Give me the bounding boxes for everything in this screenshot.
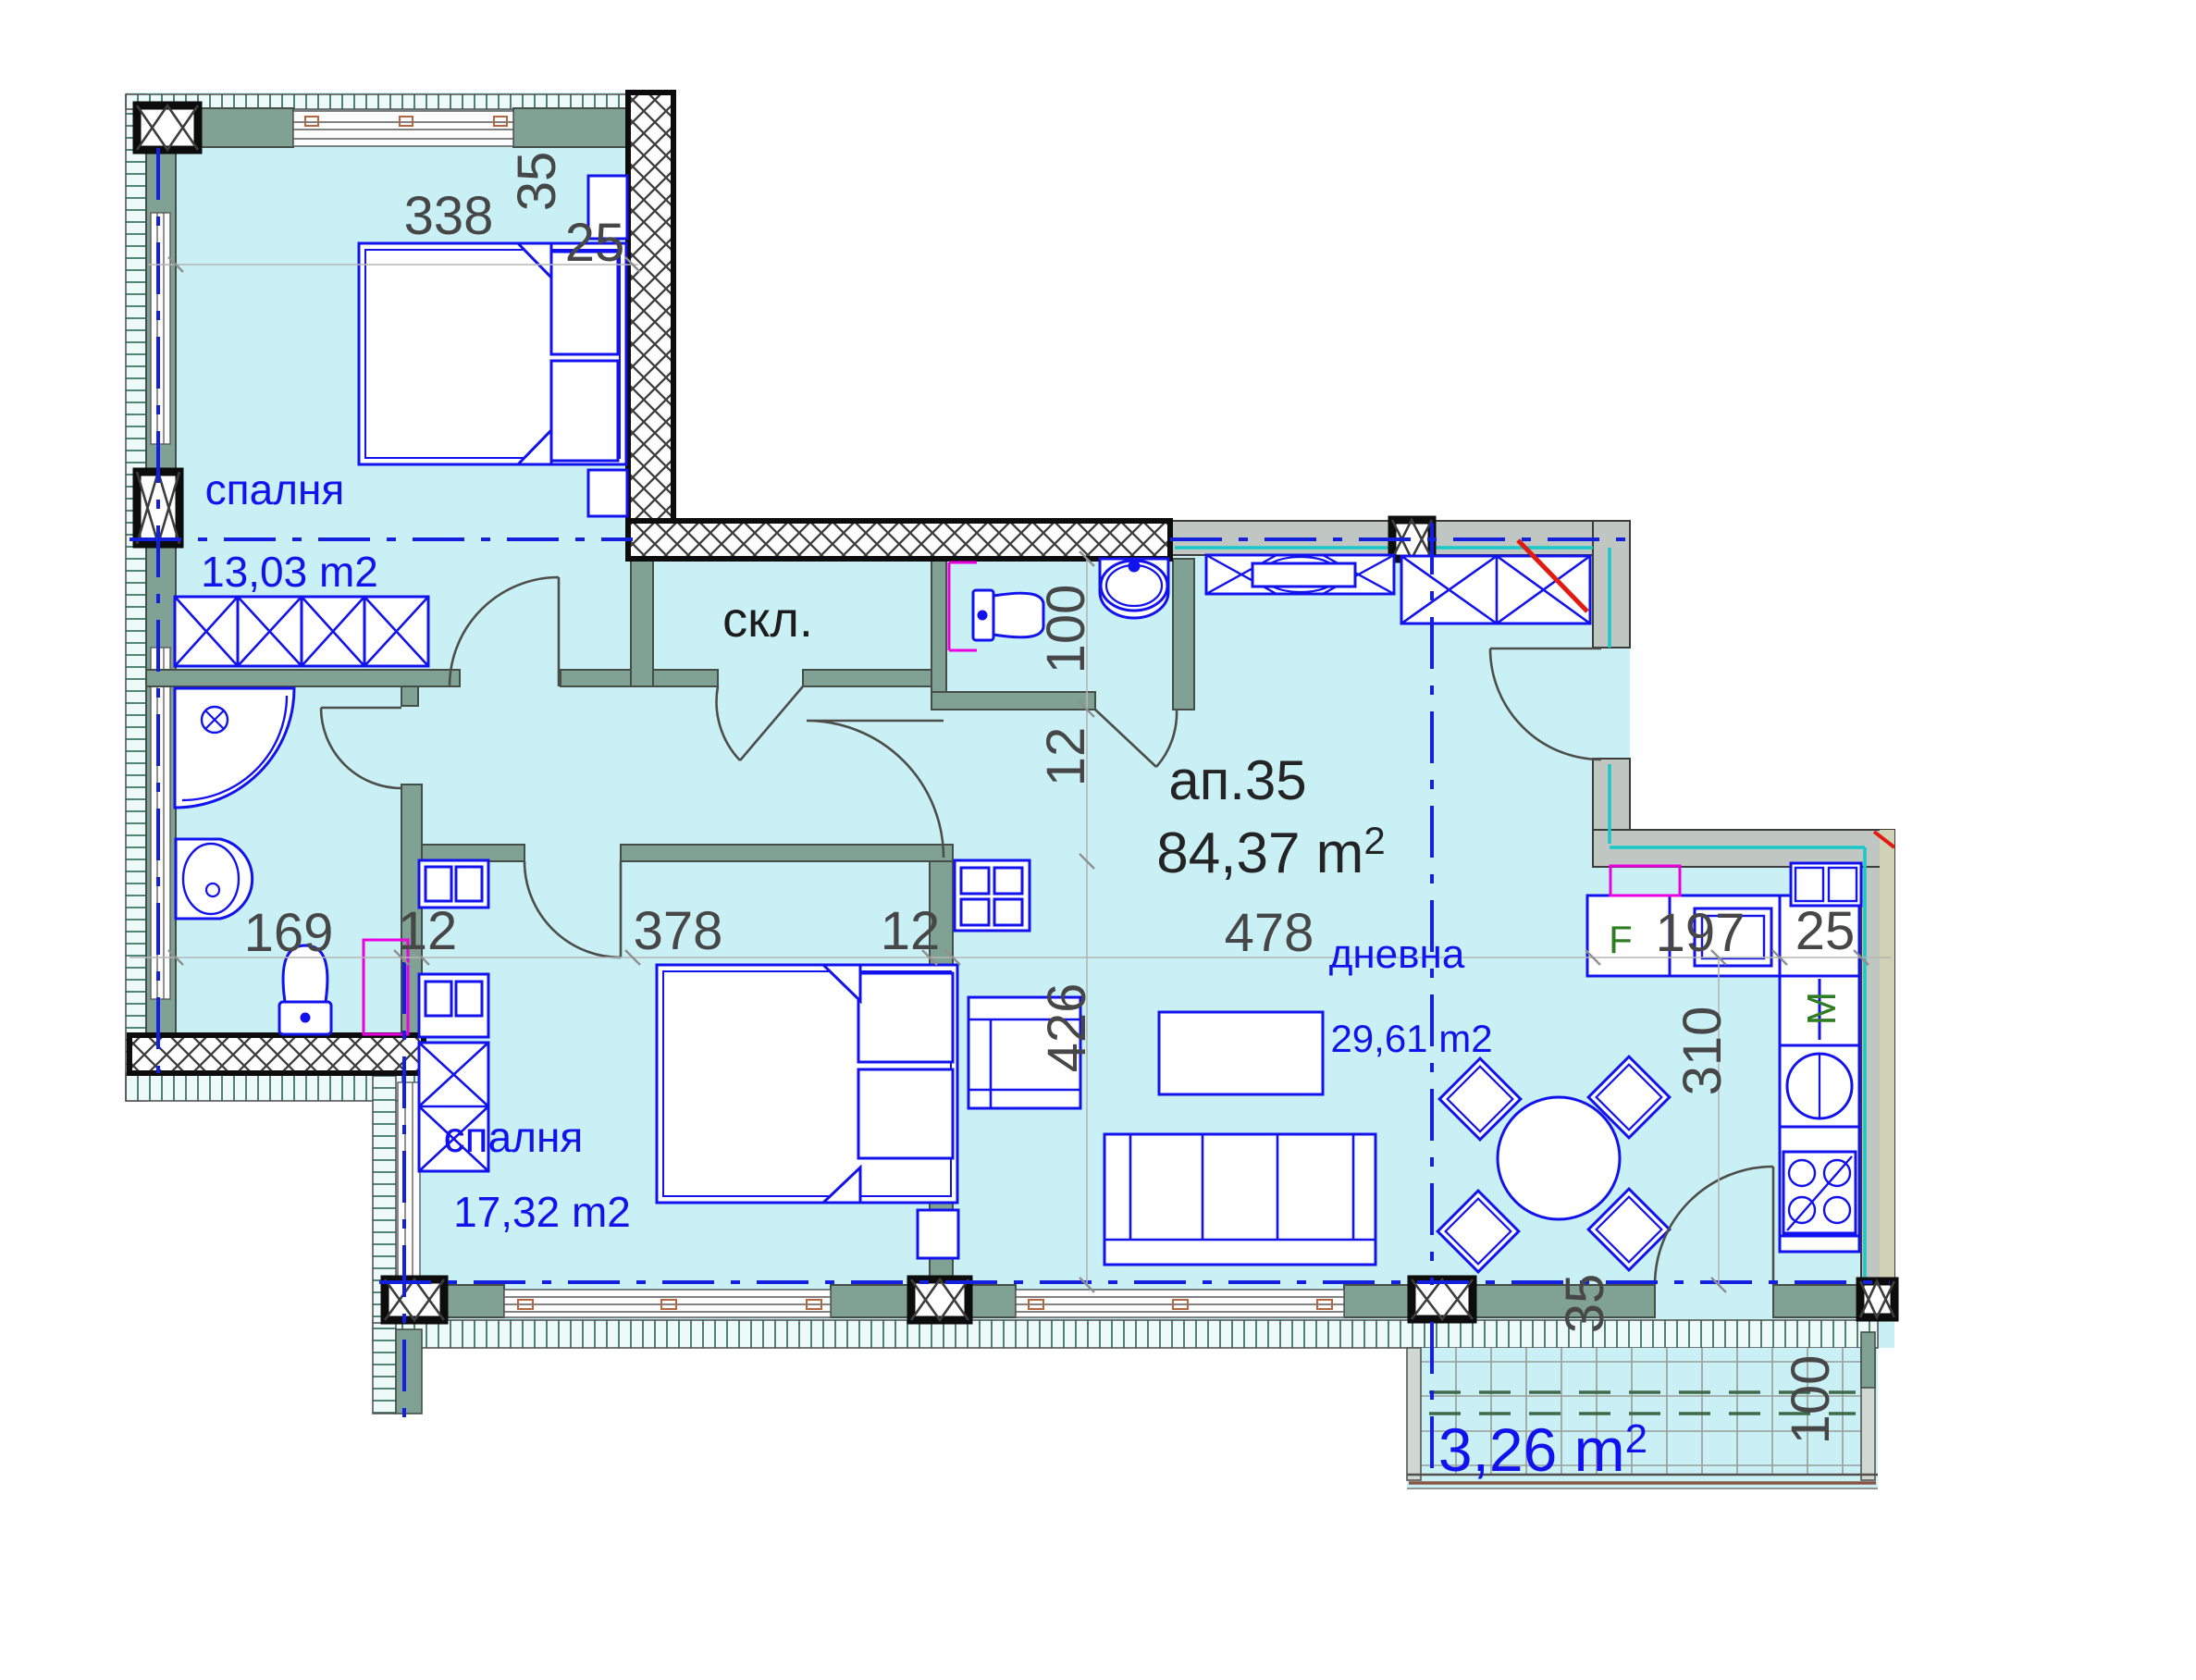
svg-text:84,37 m2: 84,37 m2 xyxy=(1156,819,1385,885)
svg-text:35: 35 xyxy=(1555,1274,1615,1334)
svg-text:спалня: спалня xyxy=(444,1113,584,1161)
svg-text:13,03 m2: 13,03 m2 xyxy=(201,548,378,596)
svg-text:338: 338 xyxy=(404,186,494,246)
svg-text:12: 12 xyxy=(1036,727,1096,787)
svg-text:310: 310 xyxy=(1672,1007,1733,1096)
svg-text:100: 100 xyxy=(1781,1355,1841,1445)
svg-text:25: 25 xyxy=(1795,901,1856,961)
svg-text:спалня: спалня xyxy=(205,465,345,513)
svg-text:100: 100 xyxy=(1036,585,1096,674)
svg-text:29,61 m2: 29,61 m2 xyxy=(1330,1017,1492,1060)
svg-text:ап.35: ап.35 xyxy=(1168,749,1306,811)
svg-text:25: 25 xyxy=(565,213,625,273)
svg-text:12: 12 xyxy=(398,901,458,961)
svg-text:дневна: дневна xyxy=(1329,932,1465,977)
svg-text:3,26 m2: 3,26 m2 xyxy=(1438,1415,1647,1484)
svg-text:17,32 m2: 17,32 m2 xyxy=(453,1188,631,1236)
svg-text:426: 426 xyxy=(1037,983,1097,1073)
svg-text:F: F xyxy=(1609,918,1633,961)
svg-text:169: 169 xyxy=(244,903,334,963)
svg-text:M: M xyxy=(1799,992,1844,1026)
svg-text:35: 35 xyxy=(507,152,567,212)
svg-text:197: 197 xyxy=(1656,903,1746,963)
svg-text:378: 378 xyxy=(634,901,723,961)
svg-text:скл.: скл. xyxy=(722,592,813,648)
svg-text:478: 478 xyxy=(1225,903,1314,963)
svg-text:12: 12 xyxy=(881,901,941,961)
